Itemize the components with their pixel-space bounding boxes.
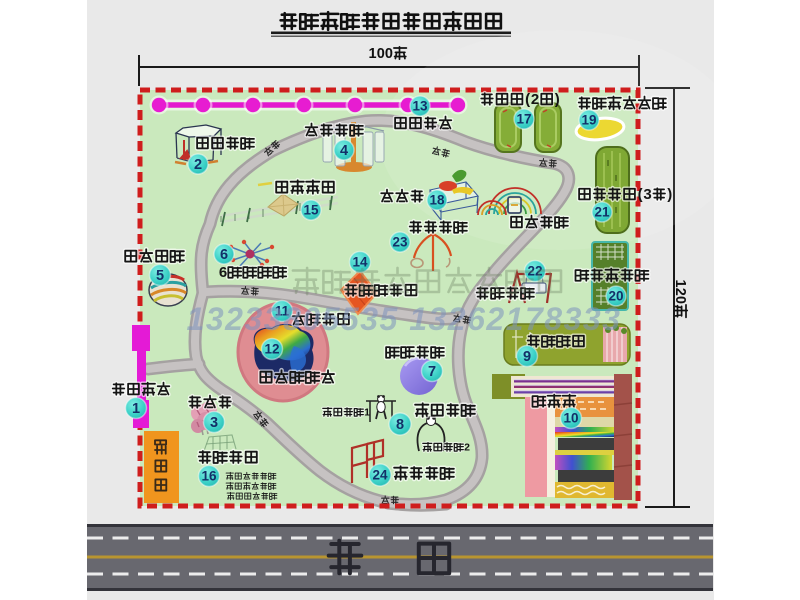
svg-text:1: 1 <box>369 46 377 62</box>
svg-text:21: 21 <box>594 205 610 220</box>
svg-text:2: 2 <box>531 91 539 108</box>
svg-text:13233805535 13262178333: 13233805535 13262178333 <box>187 301 622 337</box>
svg-text:14: 14 <box>352 255 368 270</box>
svg-text:6: 6 <box>219 264 227 281</box>
svg-text:24: 24 <box>372 468 388 483</box>
svg-text:16: 16 <box>201 469 217 484</box>
svg-text:5: 5 <box>156 268 164 284</box>
svg-text:12: 12 <box>264 342 279 357</box>
svg-text:10: 10 <box>563 411 578 426</box>
svg-text:15: 15 <box>303 203 319 218</box>
svg-text:23: 23 <box>392 235 408 250</box>
svg-text:0: 0 <box>377 46 385 62</box>
svg-text:0: 0 <box>672 296 688 304</box>
svg-text:1: 1 <box>364 407 370 419</box>
svg-text:3: 3 <box>210 415 218 431</box>
svg-text:4: 4 <box>340 143 348 159</box>
svg-text:9: 9 <box>523 349 531 365</box>
svg-text:7: 7 <box>428 364 436 380</box>
svg-text:1: 1 <box>672 280 688 288</box>
svg-text:): ) <box>667 186 672 203</box>
svg-text:2: 2 <box>672 288 688 296</box>
svg-text:6: 6 <box>220 247 228 263</box>
svg-text:1: 1 <box>132 401 140 417</box>
svg-text:(: ( <box>525 91 530 108</box>
svg-text:19: 19 <box>581 113 596 128</box>
svg-text:3: 3 <box>643 186 651 203</box>
svg-text:0: 0 <box>385 46 393 62</box>
svg-text:2: 2 <box>464 442 470 454</box>
svg-text:2: 2 <box>194 157 202 173</box>
svg-text:18: 18 <box>429 193 445 208</box>
svg-text:(: ( <box>638 186 643 203</box>
svg-text:8: 8 <box>396 417 404 433</box>
svg-text:17: 17 <box>516 112 531 127</box>
svg-text:13: 13 <box>412 99 428 114</box>
svg-text:): ) <box>555 91 560 108</box>
